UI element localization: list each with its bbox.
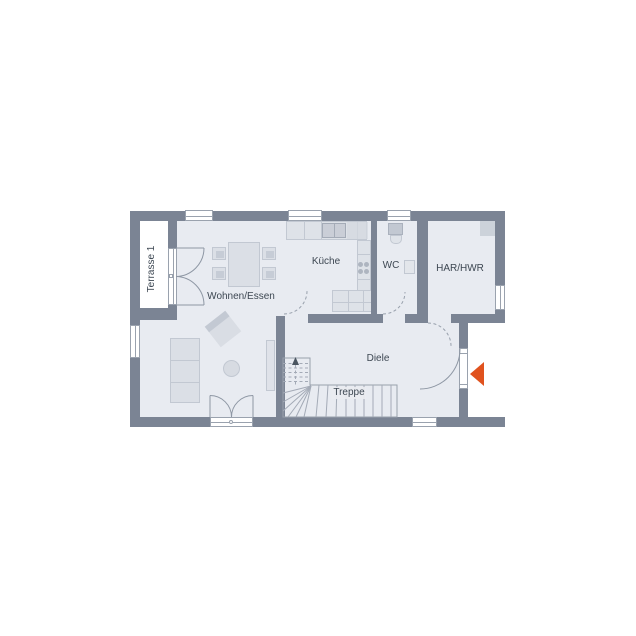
wall-porch-upper — [459, 323, 468, 348]
wall-porch-lower — [459, 389, 468, 417]
wall-living-hall — [276, 316, 285, 417]
cooktop-burner — [358, 269, 363, 274]
dining-chair — [212, 267, 226, 280]
wall-exterior-bottom-left — [130, 417, 210, 427]
room-label-wc: WC — [383, 261, 400, 271]
wall-exterior-left-lower — [130, 358, 140, 417]
wc-sink — [404, 260, 415, 274]
room-label-terrace: Terrasse 1 — [147, 246, 157, 293]
sofa — [170, 338, 200, 403]
dining-chair — [262, 247, 276, 260]
window-kitchen-top — [288, 210, 322, 221]
toilet-cistern — [388, 223, 403, 235]
window-hall-bottom — [412, 417, 437, 427]
dining-chair — [262, 267, 276, 280]
wall-wc-utility — [417, 221, 428, 323]
cooktop-burner — [364, 262, 369, 267]
entrance-arrow-icon — [470, 362, 484, 386]
page: Terrasse 1 Wohnen/Essen Küche WC HAR/HWR… — [0, 0, 636, 636]
room-label-hallway: Diele — [367, 354, 390, 364]
wall-exterior-bottom-right — [437, 417, 505, 427]
dining-table — [228, 242, 260, 287]
terrace-door-handle — [169, 274, 173, 278]
dining-chair — [212, 247, 226, 260]
window-wc-top — [387, 210, 411, 221]
kitchen-sink — [322, 223, 346, 238]
room-label-kitchen: Küche — [312, 257, 340, 267]
wall-terrace-bottom — [130, 308, 177, 320]
entrance-door — [459, 348, 468, 389]
toilet-bowl — [390, 235, 402, 244]
floor-plan: Terrasse 1 Wohnen/Essen Küche WC HAR/HWR… — [130, 210, 505, 427]
wall-exterior-right-upper — [495, 211, 505, 285]
window-utility-right — [495, 285, 505, 310]
wall-kitchen-wc — [371, 221, 377, 314]
utility-appliance — [480, 220, 495, 236]
cooktop-burner — [364, 269, 369, 274]
window-living-left — [130, 325, 140, 358]
cooktop-burner — [358, 262, 363, 267]
wall-utility-bottom — [451, 314, 505, 323]
sideboard — [266, 340, 275, 391]
room-label-living-dining: Wohnen/Essen — [207, 292, 275, 302]
room-label-stairs: Treppe — [331, 387, 366, 399]
wall-exterior-bottom-mid — [253, 417, 412, 427]
window-living-top — [185, 210, 213, 221]
garden-door-handle — [229, 420, 233, 424]
coffee-table — [223, 360, 240, 377]
wall-terrace-right-upper — [168, 221, 177, 248]
wall-kitchen-hall — [308, 314, 383, 323]
room-label-utility: HAR/HWR — [436, 264, 484, 274]
